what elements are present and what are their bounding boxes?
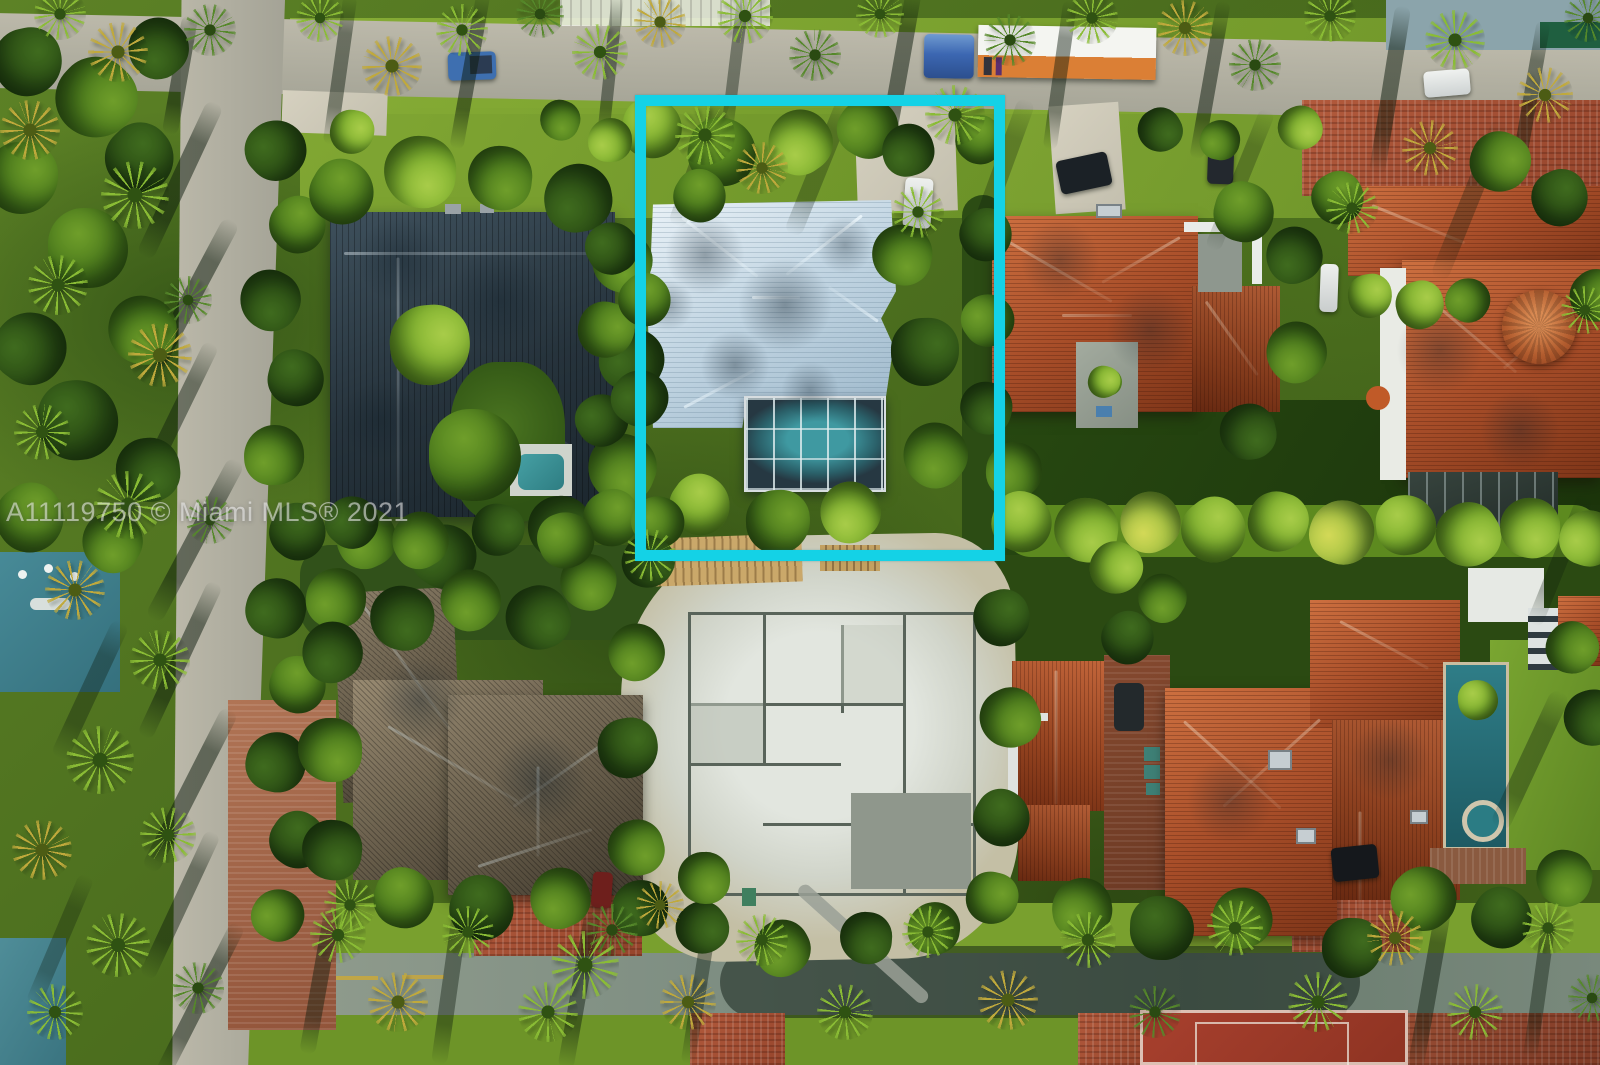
planter-pot (1364, 294, 1386, 316)
left-pool-deck (0, 938, 66, 1065)
black-suv (1330, 844, 1379, 883)
poured-slab (851, 793, 971, 889)
screened-lanai (1408, 472, 1558, 528)
red-car (591, 871, 613, 908)
swimming-pool-small (518, 454, 564, 490)
patio-furniture (44, 564, 53, 573)
truck-cab (924, 34, 975, 79)
blue-utility-vehicle (448, 51, 497, 81)
white-car-road (1423, 68, 1471, 98)
property-highlight-box (635, 95, 1005, 561)
brick-motor-court (1302, 100, 1600, 196)
patio-deck (0, 552, 120, 692)
house-brown-roof (328, 585, 648, 900)
brick-apron-3 (1078, 1013, 1148, 1065)
rear-patio (1198, 234, 1242, 292)
watermark-text: A11119750 © Miami MLS® 2021 (6, 497, 409, 528)
inner-courtyard (1076, 342, 1138, 428)
brick-apron-2 (690, 1013, 785, 1065)
court-windscreen (1540, 22, 1600, 48)
neighbor-white-building (1528, 608, 1558, 670)
sidewalk (281, 90, 387, 136)
house-dark-slate-roof (330, 212, 615, 517)
pool-deck-brick (1430, 848, 1526, 884)
dark-car-driveway (1207, 126, 1235, 185)
portable-toilet (742, 888, 756, 906)
patio-table (30, 598, 70, 610)
road-centerline-2 (402, 975, 444, 979)
planter-pot (1366, 386, 1390, 410)
house-turret-estate (1302, 100, 1600, 530)
court-lines (1195, 1022, 1349, 1065)
foundation-walls (688, 612, 976, 896)
turret-cone-roof (1502, 290, 1576, 364)
sport-court (1140, 1010, 1408, 1065)
house-terracotta-top (992, 210, 1292, 432)
patio-furniture (18, 570, 27, 579)
pergola (560, 0, 770, 26)
patio-furniture (70, 572, 79, 581)
brick-corner (1408, 1013, 1600, 1065)
moving-truck (921, 22, 1160, 86)
truck-trailer (978, 25, 1157, 80)
blue-tarp (1096, 406, 1112, 417)
white-car-driveway (1319, 264, 1339, 313)
spa (1462, 800, 1504, 842)
brick-drive-bottom-left (228, 700, 336, 1030)
parked-cart (1114, 683, 1144, 731)
courtyard-tree (1094, 368, 1122, 396)
aerial-photo: A11119750 © Miami MLS® 2021 (0, 0, 1600, 1065)
courtyard-garden (450, 362, 565, 522)
garage-house (1008, 655, 1170, 890)
house-estate-pool (1160, 560, 1600, 960)
